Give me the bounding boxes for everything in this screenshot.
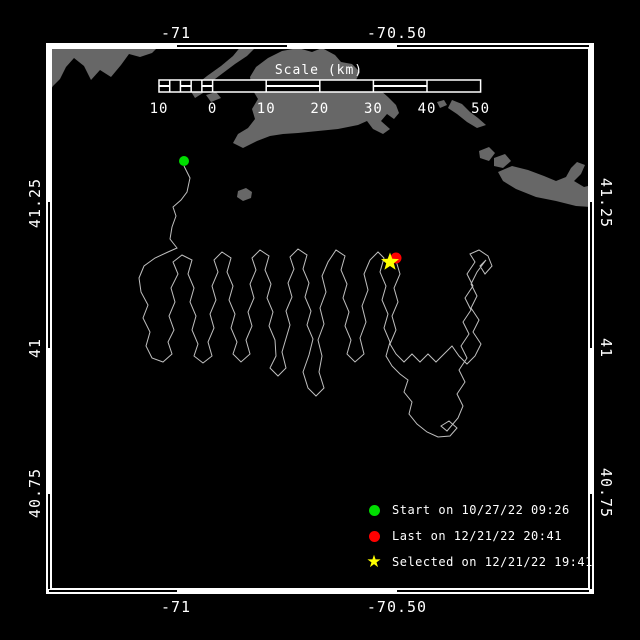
axis-label-bottom: -70.50 [367, 598, 427, 616]
last-dot-icon [365, 526, 383, 546]
glider-track [139, 166, 492, 437]
selected-star-icon: ★ [365, 552, 383, 572]
axis-label-right: 41.25 [597, 178, 615, 228]
legend-item-start: Start on 10/27/22 09:26 [365, 497, 593, 523]
legend-item-last: Last on 12/21/22 20:41 [365, 523, 593, 549]
scale-bar-stripe [266, 85, 320, 87]
axis-label-right: 40.75 [597, 468, 615, 518]
landmass-tuckernuck [479, 147, 495, 161]
axis-label-left: 41 [26, 338, 44, 358]
legend: Start on 10/27/22 09:26 Last on 12/21/22… [365, 497, 593, 575]
scale-bar-stripe [180, 85, 191, 87]
frame-stripe [397, 45, 589, 47]
axis-label-top: -71 [161, 24, 191, 42]
landmass-muskeget [494, 154, 511, 168]
start-dot-icon [365, 500, 383, 520]
scale-bar-number: 0 [208, 101, 217, 117]
landmass-mainland-west [46, 45, 160, 97]
axis-label-right: 41 [597, 338, 615, 358]
scale-bar-stripe [159, 85, 170, 87]
frame-stripe [590, 202, 592, 348]
legend-last-label: Last on 12/21/22 20:41 [392, 529, 562, 543]
scale-bar-stripe [373, 85, 427, 87]
legend-item-selected: ★ Selected on 12/21/22 19:41 [365, 549, 593, 575]
start-marker [179, 156, 189, 166]
scale-bar-title: Scale (km) [275, 63, 363, 78]
landmass-nomans-land [237, 188, 252, 201]
frame-stripe [48, 494, 50, 589]
landmass-islet-dot [437, 100, 447, 108]
axis-label-top: -70.50 [367, 24, 427, 42]
legend-selected-label: Selected on 12/21/22 19:41 [392, 555, 593, 569]
axis-label-left: 40.75 [26, 468, 44, 518]
scale-bar-number: 10 [257, 101, 276, 117]
frame-stripe [177, 45, 287, 47]
legend-start-label: Start on 10/27/22 09:26 [392, 503, 570, 517]
track-map-page: Scale (km)1001020304050-71-70.50-71-70.5… [0, 0, 640, 640]
landmass-nantucket [498, 162, 592, 207]
scale-bar-number: 10 [150, 101, 169, 117]
frame-stripe [48, 202, 50, 348]
scale-bar: Scale (km)1001020304050 [150, 63, 490, 117]
frame-stripe [397, 590, 589, 592]
scale-bar-stripe [202, 85, 213, 87]
axis-label-left: 41.25 [26, 178, 44, 228]
scale-bar-number: 50 [471, 101, 490, 117]
axis-label-bottom: -71 [161, 598, 191, 616]
scale-bar-number: 20 [310, 101, 329, 117]
scale-bar-number: 30 [364, 101, 383, 117]
frame-stripe [49, 590, 177, 592]
scale-bar-number: 40 [418, 101, 437, 117]
